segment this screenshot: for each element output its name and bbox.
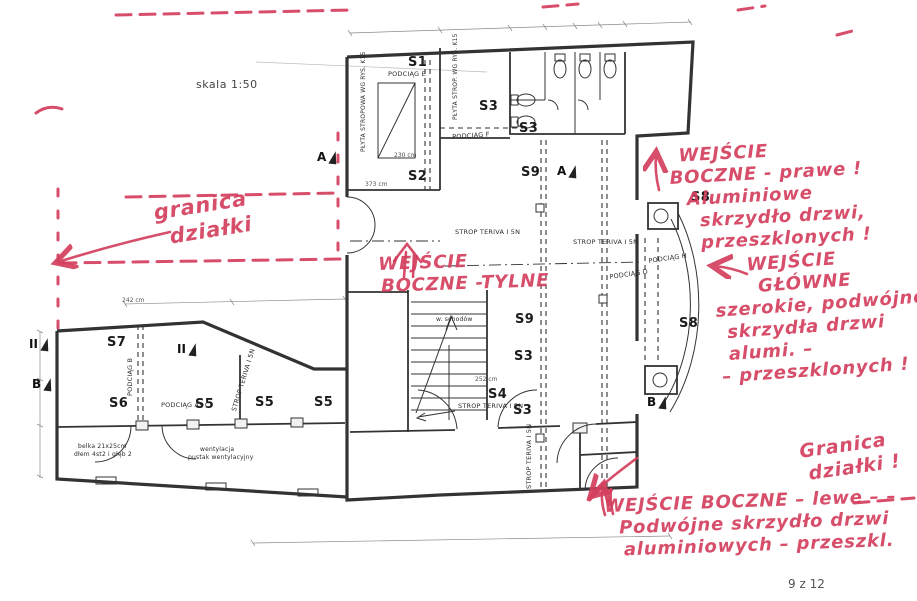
room-label: S9 [521,165,540,180]
plan-technical-label: dłem 4st2 i głęb 2 [74,451,132,458]
note-wejscie-boczne-lewe: WEJŚCIE BOCZNE – lewe – –Podwójne skrzyd… [604,486,898,562]
room-label: S5 [314,395,333,410]
plan-technical-label: PŁYTA STROP. WG RYS. K15 [452,33,459,120]
dimension-label: 230 cm [394,152,417,159]
section-marker-ii: II [177,342,197,356]
scale-label: skala 1:50 [196,78,258,91]
room-label: S6 [109,396,128,411]
plan-technical-label: wentylacja [200,446,234,453]
scanned-floor-plan-page: S1S2S3S3S9S9S3S4S3S8S8S7S6S5S5S5 PODCIĄG… [0,0,917,601]
plan-technical-label: w. schodów [436,316,472,323]
plan-technical-label: STROP TERIVA I 5N [573,238,638,246]
note-wejscie-boczne-tylne: WEJŚCIEBOCZNE -TYLNE [378,248,550,298]
room-label: S3 [514,349,533,364]
room-label: S5 [255,395,274,410]
page-number: 9 z 12 [788,577,825,591]
section-flag-icon [188,343,197,357]
section-marker-letter: II [177,342,186,356]
plan-technical-label: PODCIĄG A+C [161,401,210,409]
note-wejscie-glowne: WEJŚCIEGŁÓWNEszerokie, podwójneskrzydła … [712,242,917,388]
plan-technical-label: STROP TERIVA I 5N [525,424,533,489]
room-label: S8 [679,316,698,331]
section-flag-icon [43,378,52,392]
dimension-label: 252 cm [475,376,498,383]
section-marker-letter: B [32,377,41,391]
section-flag-icon [658,396,667,410]
red-arrow-wejscie-prawe [656,154,659,190]
room-label: S3 [479,99,498,114]
section-marker-a: A [317,150,337,164]
section-marker-letter: A [317,150,326,164]
room-label: S1 [408,55,427,70]
room-label: S7 [107,335,126,350]
plan-technical-label: STROP TERIVA I 5N [458,402,523,410]
section-marker-letter: A [557,164,566,178]
dimension-label: 373 cm [365,181,388,188]
section-marker-ii: II [29,337,49,351]
plan-technical-label: PŁYTA STROPOWA WG RYS. K15 [360,51,367,152]
red-arrow-granica-bottom [592,458,637,495]
section-marker-b: B [32,377,52,391]
section-marker-a: A [557,164,577,178]
dimension-label: 242 cm [122,297,145,304]
plan-technical-label: pustak wentylacyjny [188,454,253,461]
plan-technical-label: PODCIĄG B [126,358,134,396]
section-flag-icon [329,151,338,165]
plan-technical-label: belka 21x25cm [78,443,127,450]
section-flag-icon [569,165,578,179]
room-label: S9 [515,312,534,327]
plan-technical-label: STROP TERIVA I 5N [455,228,520,236]
note-wejscie-boczne-prawe: WEJŚCIEBOCZNE - prawe !Aluminioweskrzydł… [668,136,872,256]
section-marker-letter: B [647,395,656,409]
room-label: S4 [488,387,507,402]
red-arrow-granica-left [58,232,170,262]
section-marker-letter: II [29,337,38,351]
room-label: S3 [519,121,538,136]
section-marker-b: B [647,395,667,409]
section-flag-icon [40,338,49,352]
plan-technical-label: PODCIĄG E [388,70,426,78]
room-label: S2 [408,169,427,184]
